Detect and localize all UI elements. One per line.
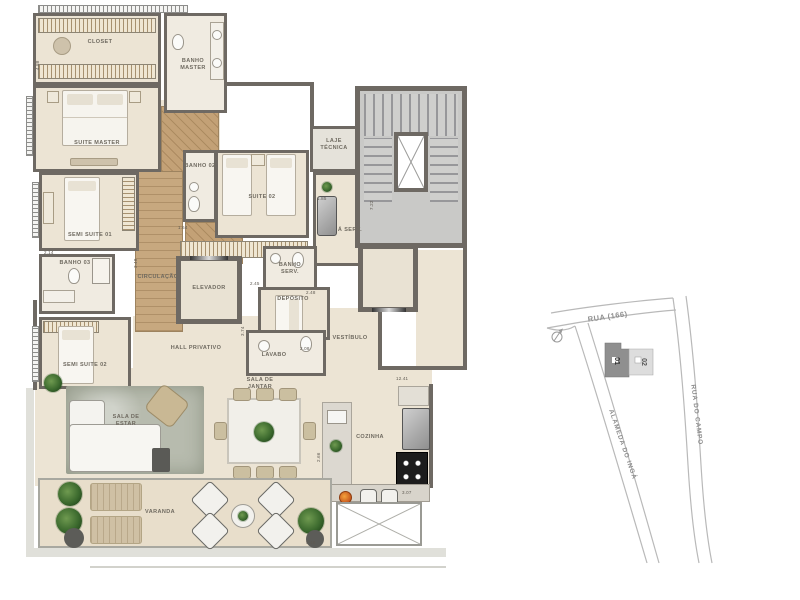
dim-2-14: 2.14 (44, 250, 54, 255)
dim-2-45: 2.45 (250, 281, 260, 286)
label-semi-suite-01: SEMI SUITE 01 (50, 232, 130, 239)
map-unit-01-label: 01 (613, 357, 620, 365)
banho-02-sink (189, 182, 199, 192)
dim-7-22: 7.22 (369, 200, 374, 210)
shaft-open-area (336, 502, 422, 546)
label-banho-03: BANHO 03 (50, 260, 100, 267)
dim-2-66: 2.66 (316, 452, 321, 462)
stairs-void (394, 132, 428, 192)
label-suite-02: SUITE 02 (234, 194, 290, 201)
semi-suite-02-bed (58, 326, 94, 384)
stairs-treads-top (364, 94, 458, 136)
label-suite-master: SUITE MASTER (72, 140, 122, 147)
label-varanda: VARANDA (135, 509, 185, 516)
dim-2-08: 2.08 (300, 346, 310, 351)
wall-hall-right-bottom (378, 366, 467, 370)
label-circulacao: CIRCULAÇÃO (126, 274, 190, 281)
room-elevador-servico (358, 244, 418, 312)
suite-02-nightstand (251, 154, 265, 166)
lavabo-sink (258, 340, 270, 352)
banho-master-sink-2 (212, 58, 222, 68)
kitchen-upper-cabinet (398, 386, 429, 406)
elevador-door (190, 256, 228, 260)
label-banho-serv: BANHO SERV. (272, 262, 308, 276)
kitchen-island-plant (330, 440, 342, 452)
cooktop (396, 452, 428, 488)
label-semi-suite-02: SEMI SUITE 02 (45, 362, 125, 369)
suite-master-nightstand-right (129, 91, 141, 103)
dining-chair-8 (303, 422, 316, 440)
closet-pouf (53, 37, 71, 55)
varanda-table-plant (238, 511, 248, 521)
window-semi-suite-02-left (32, 326, 39, 382)
dim-3-07: 3.07 (402, 490, 412, 495)
varanda-plant-left-1 (58, 482, 82, 506)
dim-12-41: 12.41 (396, 376, 408, 381)
closet-wardrobe-bottom (38, 64, 156, 79)
kitchen-island-sink (327, 410, 347, 424)
banho-master-toilet (172, 34, 184, 50)
banho-03-vanity (43, 290, 75, 303)
dim-2-48: 2.48 (306, 290, 316, 295)
floorplan-page: CLOSET BANHO MASTER SUITE MASTER SEMI SU… (0, 0, 800, 600)
label-sala-estar: SALA DE ESTAR (106, 414, 146, 428)
suite-master-bench (70, 158, 118, 166)
label-closet: CLOSET (70, 39, 130, 46)
label-a-serv: Á SERV. (330, 227, 370, 234)
suite-02-bed-1 (222, 154, 252, 216)
hall-right-floor (416, 250, 466, 370)
dining-chair-7 (214, 422, 227, 440)
fridge (402, 408, 430, 450)
sofa-seat (69, 424, 161, 472)
wall-vestibulo-right (378, 312, 382, 368)
label-banho-02: BANHO 02 (184, 163, 216, 170)
suite-master-bed (62, 90, 128, 146)
a-serv-plant (322, 182, 332, 192)
label-deposito: DEPÓSITO (268, 296, 318, 303)
window-suite-master-left (26, 96, 33, 156)
window-closet-top (38, 5, 188, 13)
stairs-treads-left (364, 138, 392, 202)
map-street-top-label: RUA (166) (587, 309, 628, 323)
window-semi-suite-01-left (32, 182, 39, 238)
wall-top-step (225, 82, 313, 86)
dim-3-74: 3.74 (240, 326, 245, 336)
label-laje-tecnica: LAJE TÉCNICA (314, 138, 354, 152)
wall-mid-vertical (310, 82, 314, 128)
stairs-treads-right (430, 138, 458, 202)
label-elevador: ELEVADOR (184, 285, 234, 292)
lounger-2 (90, 516, 142, 544)
stairs-void-cross (398, 136, 424, 188)
location-map: 01 02 RUA (166) RUA DO CAMPO ALAMEDA DO … (545, 295, 780, 565)
map-street-right-label: RUA DO CAMPO (689, 384, 703, 445)
property-line-bottom (90, 566, 446, 568)
map-streets (547, 296, 712, 563)
slab-band-left (26, 388, 34, 550)
dim-1-64: 1.64 (178, 225, 188, 230)
map-unit-02-label: 02 (640, 358, 647, 366)
dining-centerpiece (254, 422, 274, 442)
living-plant (44, 374, 62, 392)
slab-band-bottom (26, 548, 446, 557)
closet-wardrobe-top (38, 18, 156, 33)
dim-9-48: 9.48 (306, 540, 316, 545)
suite-master-nightstand-left (47, 91, 59, 103)
semi-suite-01-wardrobe (122, 177, 135, 231)
banho-02-toilet (188, 196, 200, 212)
banho-master-sink-1 (212, 30, 222, 40)
label-banho-master: BANHO MASTER (173, 58, 213, 72)
coffee-table (152, 448, 170, 472)
label-vestibulo: VESTÍBULO (325, 335, 375, 342)
semi-suite-01-desk (43, 192, 54, 224)
suite-02-bed-2 (266, 154, 296, 216)
varanda-planter-left (64, 528, 84, 548)
label-hall-privativo: HALL PRIVATIVO (156, 345, 236, 352)
label-cozinha: COZINHA (345, 434, 395, 441)
dim-1-85: 1.85 (317, 196, 327, 201)
shaft-cross (338, 504, 420, 544)
label-sala-jantar: SALA DE JANTAR (238, 377, 282, 391)
lounger-1 (90, 483, 142, 511)
banho-03-toilet (68, 268, 80, 284)
label-lavabo: LAVABO (254, 352, 294, 359)
varanda-planter-right (306, 530, 324, 548)
dim-3-48: 3.48 (133, 258, 138, 268)
wall-right-outer (463, 246, 467, 368)
dim-4-88: 4.88 (35, 60, 40, 70)
